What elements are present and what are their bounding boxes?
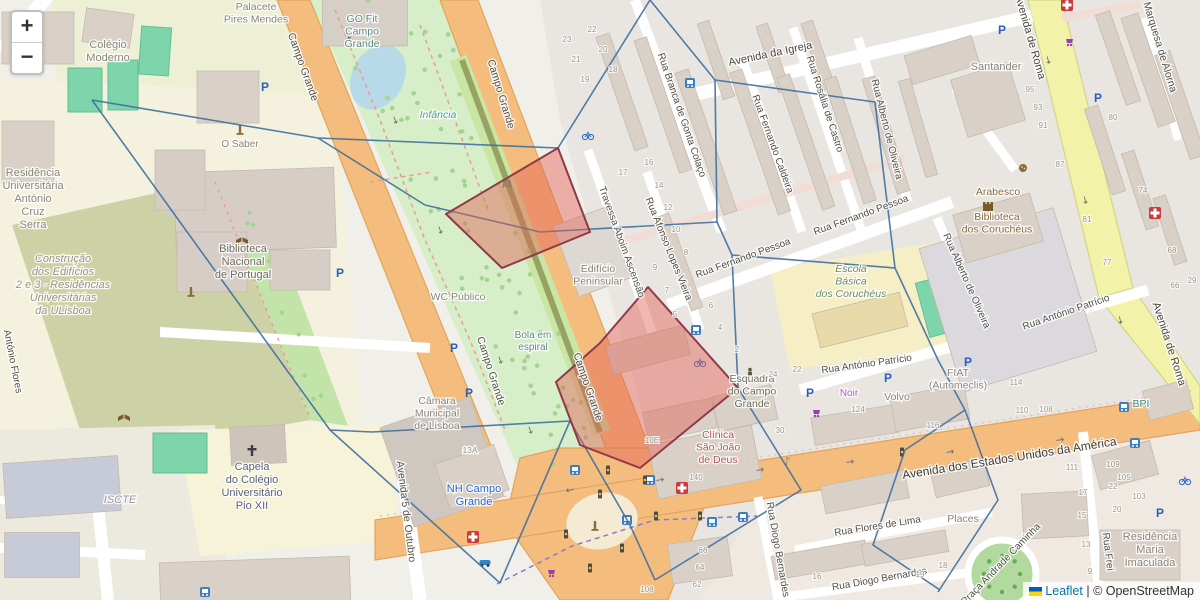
svg-text:Biblioteca: Biblioteca bbox=[219, 243, 268, 255]
house-number: 110 bbox=[1016, 406, 1029, 415]
parking-icon[interactable]: P bbox=[998, 23, 1006, 37]
ukraine-flag-icon bbox=[1029, 587, 1042, 596]
svg-text:Residência: Residência bbox=[1123, 531, 1178, 543]
svg-text:Noir: Noir bbox=[840, 388, 859, 399]
zoom-control: + − bbox=[10, 10, 44, 75]
building bbox=[668, 536, 733, 584]
svg-text:Universitária: Universitária bbox=[2, 180, 64, 192]
building bbox=[159, 556, 350, 600]
svg-text:de Deus: de Deus bbox=[698, 454, 737, 466]
tree bbox=[522, 359, 527, 364]
zoom-out-button[interactable]: − bbox=[12, 43, 42, 73]
svg-text:de Lisboa: de Lisboa bbox=[414, 420, 460, 432]
house-number: 64 bbox=[696, 563, 705, 572]
svg-text:→: → bbox=[565, 483, 575, 495]
house-number: 91 bbox=[1039, 121, 1048, 130]
house-number: 8 bbox=[684, 248, 689, 257]
house-number: 16 bbox=[645, 158, 654, 167]
svg-text:P: P bbox=[261, 80, 269, 94]
building bbox=[5, 533, 80, 578]
svg-text:Construção: Construção bbox=[35, 253, 91, 265]
tree bbox=[385, 96, 390, 101]
light-icon bbox=[564, 530, 568, 539]
light-icon bbox=[643, 476, 647, 485]
svg-text:dos Coruchéus: dos Coruchéus bbox=[962, 224, 1033, 236]
svg-text:Universitárias: Universitárias bbox=[30, 292, 97, 304]
svg-text:Maria: Maria bbox=[1136, 544, 1164, 556]
tree bbox=[556, 404, 561, 409]
svg-text:de Portugal: de Portugal bbox=[215, 269, 271, 281]
building bbox=[155, 150, 205, 210]
attribution-bar: Leaflet | © OpenStreetMap bbox=[1023, 582, 1200, 600]
svg-text:Imaculada: Imaculada bbox=[1125, 557, 1177, 569]
house-number: 23 bbox=[563, 35, 572, 44]
house-number: 18 bbox=[609, 65, 618, 74]
svg-text:Câmara: Câmara bbox=[418, 395, 456, 407]
svg-text:São João: São João bbox=[696, 442, 741, 454]
tree bbox=[446, 32, 451, 37]
tree bbox=[457, 92, 462, 97]
house-number: 21 bbox=[572, 55, 581, 64]
tree bbox=[485, 278, 490, 283]
house-number: 66 bbox=[1171, 281, 1180, 290]
map-canvas: PPPPPPPPPP♪→→→→→→→→→→→→→→ColégioModernoP… bbox=[0, 0, 1200, 600]
tree bbox=[522, 366, 527, 371]
svg-text:P: P bbox=[806, 386, 814, 400]
house-number: 16 bbox=[813, 572, 822, 581]
house-number: 77 bbox=[1103, 258, 1112, 267]
svg-text:Básica: Básica bbox=[835, 276, 867, 288]
tree bbox=[463, 183, 468, 188]
arrow-icon: → bbox=[755, 464, 765, 476]
tree bbox=[245, 221, 249, 225]
leaflet-link[interactable]: Leaflet bbox=[1045, 584, 1083, 598]
house-number: 105 bbox=[1117, 473, 1131, 482]
svg-text:P: P bbox=[998, 23, 1006, 37]
house-number: 103 bbox=[1132, 492, 1146, 501]
svg-text:2 e 3 · Residências: 2 e 3 · Residências bbox=[15, 279, 111, 291]
tree bbox=[311, 397, 315, 401]
house-number: 19 bbox=[916, 570, 925, 579]
house-number: 68 bbox=[1168, 246, 1177, 255]
leaflet-map[interactable]: PPPPPPPPPP♪→→→→→→→→→→→→→→ColégioModernoP… bbox=[0, 0, 1200, 600]
bus-icon[interactable] bbox=[738, 512, 748, 522]
svg-text:→: → bbox=[755, 464, 765, 476]
light-icon bbox=[654, 512, 658, 521]
svg-text:Campo: Campo bbox=[345, 26, 379, 38]
bus-icon[interactable] bbox=[1130, 438, 1140, 448]
svg-text:do Colégio: do Colégio bbox=[226, 474, 279, 486]
svg-text:P: P bbox=[450, 341, 458, 355]
map-label: Infância bbox=[420, 109, 457, 121]
building bbox=[270, 250, 330, 290]
svg-text:ISCTE: ISCTE bbox=[104, 494, 137, 506]
svg-text:Residência: Residência bbox=[6, 167, 61, 179]
tree bbox=[556, 331, 561, 336]
house-number: 81 bbox=[1083, 215, 1092, 224]
parking-icon[interactable]: P bbox=[465, 386, 473, 400]
svg-text:Municipal: Municipal bbox=[415, 408, 459, 420]
tree bbox=[528, 383, 533, 388]
sports-pitch bbox=[68, 68, 102, 112]
svg-text:Santander: Santander bbox=[971, 61, 1022, 73]
svg-text:Capela: Capela bbox=[235, 461, 271, 473]
building bbox=[230, 425, 287, 466]
light-icon bbox=[588, 564, 592, 573]
house-number: 20 bbox=[1113, 505, 1122, 514]
svg-text:Grande: Grande bbox=[734, 398, 769, 410]
house-number: 22 bbox=[1109, 482, 1118, 491]
parking-icon[interactable]: P bbox=[450, 341, 458, 355]
house-number: 74 bbox=[1139, 186, 1148, 195]
tree bbox=[411, 91, 416, 96]
tree bbox=[517, 291, 522, 296]
map-label: BibliotecaNacionalde Portugal bbox=[215, 243, 271, 281]
praca-tree bbox=[1018, 572, 1022, 576]
map-label: ColégioModerno bbox=[86, 39, 129, 64]
svg-text:Serra: Serra bbox=[20, 219, 48, 231]
house-number: 109 bbox=[1106, 460, 1120, 469]
house-number: 9 bbox=[653, 263, 658, 272]
house-number: 24 bbox=[769, 370, 778, 379]
svg-text:António: António bbox=[14, 193, 51, 205]
svg-text:Palacete: Palacete bbox=[236, 1, 277, 13]
svg-text:O Saber: O Saber bbox=[221, 139, 259, 150]
svg-text:NH Campo: NH Campo bbox=[447, 483, 501, 495]
tree bbox=[497, 273, 502, 278]
map-label: BPI bbox=[1133, 398, 1150, 410]
svg-text:Escola: Escola bbox=[835, 263, 867, 275]
svg-text:Volvo: Volvo bbox=[884, 391, 910, 403]
praca-tree bbox=[987, 559, 991, 563]
tree bbox=[469, 136, 474, 141]
building bbox=[3, 456, 122, 519]
svg-text:Places: Places bbox=[947, 513, 979, 525]
light-icon bbox=[620, 544, 624, 553]
medical-icon bbox=[467, 531, 479, 543]
praca-tree bbox=[1000, 590, 1004, 594]
svg-text:→: → bbox=[655, 474, 665, 486]
svg-text:da ULisboa: da ULisboa bbox=[35, 305, 91, 317]
tree bbox=[480, 276, 485, 281]
map-label: Volvo bbox=[884, 391, 910, 403]
tree bbox=[423, 30, 428, 35]
house-number: 111 bbox=[1066, 463, 1079, 472]
house-number: 10 bbox=[672, 225, 681, 234]
osm-attribution: © OpenStreetMap bbox=[1093, 584, 1194, 598]
parking-icon[interactable]: P bbox=[806, 386, 814, 400]
tree bbox=[302, 374, 306, 378]
castle-icon bbox=[983, 202, 993, 211]
parking-icon[interactable]: P bbox=[1094, 91, 1102, 105]
tree bbox=[548, 432, 553, 437]
arrow-icon: → bbox=[655, 474, 665, 486]
sports-pitch bbox=[108, 60, 138, 110]
svg-text:Nacional: Nacional bbox=[222, 256, 265, 268]
house-number: 66 bbox=[699, 546, 708, 555]
svg-text:dos Edifícios: dos Edifícios bbox=[32, 266, 95, 278]
house-number: 4 bbox=[718, 323, 723, 332]
tree bbox=[296, 332, 300, 336]
svg-text:Pires Mendes: Pires Mendes bbox=[224, 14, 288, 26]
house-number: 95 bbox=[1026, 85, 1035, 94]
bus-icon[interactable] bbox=[200, 587, 210, 597]
house-number: 5 bbox=[673, 310, 678, 319]
tree bbox=[422, 67, 427, 72]
bus-icon[interactable] bbox=[691, 325, 701, 335]
map-label: CâmaraMunicipalde Lisboa bbox=[414, 395, 460, 432]
tree bbox=[408, 177, 413, 182]
map-label: GO FitCampoGrande bbox=[344, 13, 379, 50]
tree bbox=[409, 31, 414, 36]
parking-icon[interactable]: P bbox=[884, 371, 892, 385]
tree bbox=[390, 106, 395, 111]
zoom-in-button[interactable]: + bbox=[12, 12, 42, 43]
svg-text:Universitário: Universitário bbox=[221, 487, 282, 499]
house-number: 12 bbox=[664, 203, 673, 212]
light-icon bbox=[698, 512, 702, 521]
tree bbox=[493, 344, 498, 349]
parking-icon[interactable]: P bbox=[1156, 506, 1164, 520]
bus-icon[interactable] bbox=[570, 465, 580, 475]
svg-text:Grande: Grande bbox=[456, 496, 493, 508]
medical-icon bbox=[1061, 0, 1073, 11]
arrow-icon: → bbox=[845, 456, 855, 468]
house-number: 18 bbox=[939, 561, 948, 570]
bus-icon[interactable] bbox=[685, 78, 695, 88]
praca-tree bbox=[1013, 585, 1017, 589]
tree bbox=[510, 358, 515, 363]
svg-text:P: P bbox=[884, 371, 892, 385]
house-number: 19 bbox=[581, 75, 590, 84]
map-label: O Saber bbox=[221, 139, 259, 150]
map-label: Bola emespiral bbox=[515, 330, 552, 353]
tree bbox=[513, 310, 518, 315]
house-number: 80 bbox=[1109, 113, 1118, 122]
map-label: Places bbox=[947, 513, 979, 525]
light-icon bbox=[598, 490, 602, 499]
svg-text:Arabesco: Arabesco bbox=[976, 186, 1021, 198]
palette-icon bbox=[1019, 164, 1027, 172]
house-number: 116 bbox=[927, 421, 940, 430]
house-number: 108 bbox=[1039, 405, 1053, 414]
house-number: 14 bbox=[655, 181, 664, 190]
svg-text:WC Público: WC Público bbox=[431, 291, 486, 303]
svg-text:→: → bbox=[945, 446, 955, 458]
tree bbox=[415, 101, 420, 106]
svg-text:Pio XII: Pio XII bbox=[236, 500, 268, 512]
tree bbox=[531, 391, 536, 396]
arrow-icon: → bbox=[565, 483, 575, 495]
house-number: 6 bbox=[709, 301, 714, 310]
svg-text:Cruz: Cruz bbox=[21, 206, 44, 218]
svg-text:BPI: BPI bbox=[1133, 398, 1150, 410]
house-number: 124 bbox=[851, 405, 865, 414]
tree bbox=[553, 411, 558, 416]
svg-text:Grande: Grande bbox=[344, 38, 379, 50]
map-label: Arabesco bbox=[976, 186, 1021, 198]
svg-text:P: P bbox=[1094, 91, 1102, 105]
svg-text:Bola em: Bola em bbox=[515, 330, 552, 341]
svg-text:Clínica: Clínica bbox=[702, 429, 734, 441]
map-label: WC Público bbox=[431, 291, 486, 303]
svg-text:Edifício: Edifício bbox=[581, 263, 616, 275]
tree bbox=[459, 276, 464, 281]
tree bbox=[267, 259, 271, 263]
house-number: 7 bbox=[665, 286, 670, 295]
tree bbox=[507, 278, 512, 283]
house-number: 62 bbox=[693, 580, 702, 589]
tree bbox=[528, 272, 533, 277]
tree bbox=[353, 66, 358, 71]
sports-pitch bbox=[153, 433, 207, 473]
tree bbox=[247, 210, 251, 214]
house-number: 22 bbox=[793, 365, 802, 374]
svg-text:13A: 13A bbox=[462, 445, 477, 455]
svg-text:Biblioteca: Biblioteca bbox=[974, 211, 1020, 223]
house-number: 9 bbox=[1088, 567, 1093, 576]
light-icon bbox=[606, 466, 610, 475]
svg-text:P: P bbox=[465, 386, 473, 400]
house-number: 114 bbox=[1010, 378, 1023, 387]
svg-text:dos Coruchéus: dos Coruchéus bbox=[816, 288, 887, 300]
svg-text:do Campo: do Campo bbox=[728, 386, 777, 398]
svg-text:espiral: espiral bbox=[518, 342, 547, 353]
medical-icon bbox=[676, 482, 688, 494]
svg-text:P: P bbox=[336, 266, 344, 280]
svg-text:Colégio: Colégio bbox=[89, 39, 126, 51]
building bbox=[197, 71, 259, 123]
house-number: 108 bbox=[640, 585, 654, 594]
house-number: 17 bbox=[1079, 488, 1088, 497]
bus-icon[interactable] bbox=[1119, 402, 1129, 412]
attribution-separator: | bbox=[1083, 584, 1093, 598]
svg-text:→: → bbox=[845, 456, 855, 468]
map-label: Noir bbox=[840, 388, 859, 399]
tree bbox=[460, 129, 465, 134]
house-number: 2 bbox=[735, 345, 740, 354]
house-number: 13 bbox=[1082, 540, 1091, 549]
map-label: 13A bbox=[462, 445, 477, 455]
house-number: 10E bbox=[645, 436, 659, 445]
house-number: 87 bbox=[1056, 160, 1065, 169]
tree bbox=[450, 168, 455, 173]
parking-icon[interactable]: P bbox=[261, 80, 269, 94]
house-number: 22 bbox=[588, 25, 597, 34]
tree bbox=[429, 209, 434, 214]
bus-icon[interactable] bbox=[707, 517, 717, 527]
tree bbox=[438, 54, 443, 59]
map-label: Santander bbox=[971, 61, 1022, 73]
svg-text:GO Fit: GO Fit bbox=[347, 13, 378, 25]
tree bbox=[500, 285, 505, 290]
medical-icon bbox=[1149, 207, 1161, 219]
svg-text:FIAT: FIAT bbox=[947, 367, 970, 379]
tree bbox=[405, 116, 410, 121]
tree bbox=[434, 176, 439, 181]
parking-icon[interactable]: P bbox=[336, 266, 344, 280]
house-number: 17 bbox=[619, 168, 628, 177]
tree bbox=[380, 109, 385, 114]
svg-text:P: P bbox=[1156, 506, 1164, 520]
tree bbox=[525, 354, 530, 359]
sports-pitch bbox=[138, 26, 171, 76]
house-number: 15 bbox=[1078, 511, 1087, 520]
svg-text:Infância: Infância bbox=[420, 109, 457, 121]
svg-text:Peninsular: Peninsular bbox=[573, 276, 623, 288]
house-number: 30 bbox=[776, 426, 785, 435]
area-capela-grounds bbox=[178, 424, 400, 556]
tree bbox=[462, 179, 467, 184]
house-number: 140 bbox=[689, 473, 703, 482]
tree bbox=[451, 48, 456, 53]
tree bbox=[319, 393, 323, 397]
map-label: ClínicaSão Joãode Deus bbox=[696, 429, 741, 466]
svg-text:(Automeclis): (Automeclis) bbox=[929, 380, 987, 392]
tree bbox=[251, 222, 255, 226]
map-label: ISCTE bbox=[104, 494, 137, 506]
tree bbox=[439, 127, 444, 132]
tree bbox=[280, 310, 284, 314]
tree bbox=[535, 363, 540, 368]
house-number: 29 bbox=[1188, 276, 1197, 285]
house-number: 20 bbox=[599, 45, 608, 54]
house-number: 93 bbox=[1034, 103, 1043, 112]
arrow-icon: → bbox=[945, 446, 955, 458]
tree bbox=[484, 265, 489, 270]
svg-text:Moderno: Moderno bbox=[86, 52, 129, 64]
